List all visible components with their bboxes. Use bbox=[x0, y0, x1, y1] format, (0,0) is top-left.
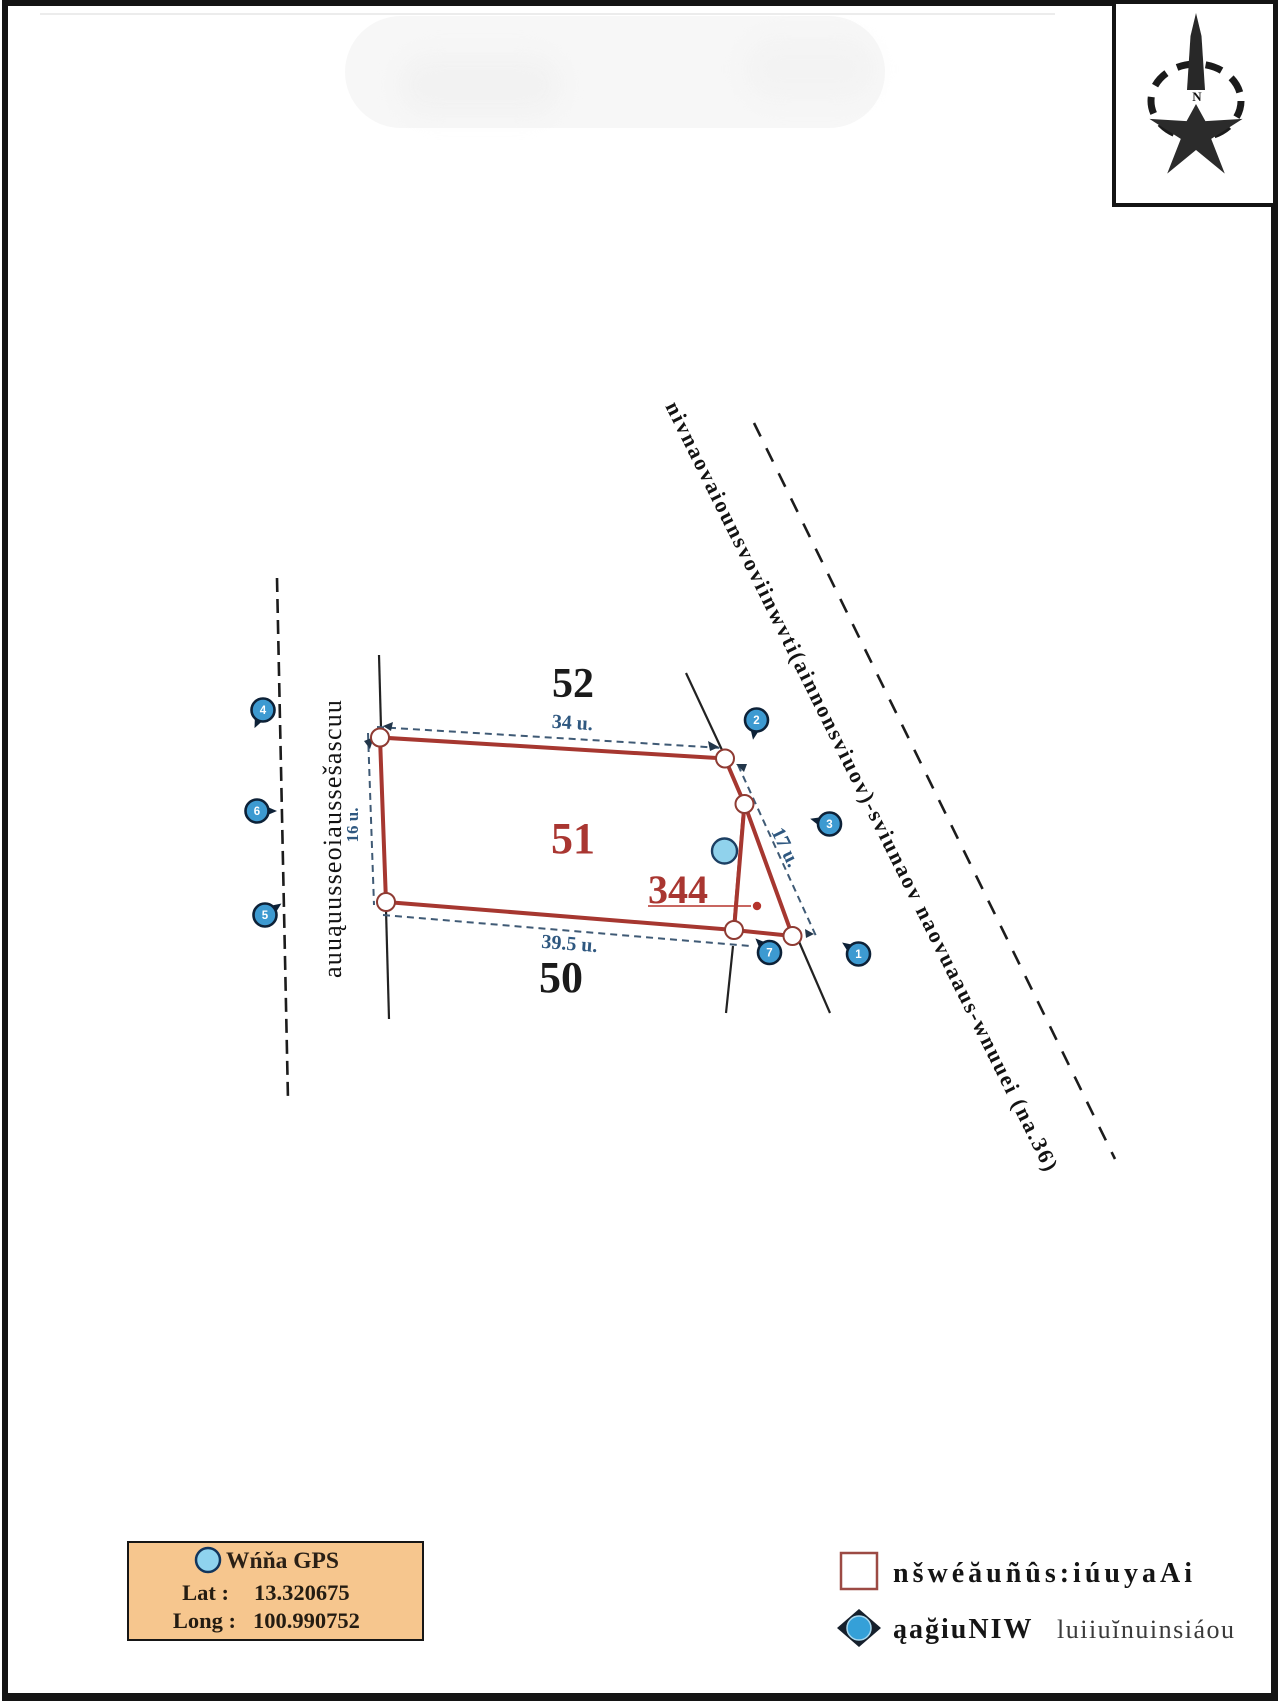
svg-text:34 u.: 34 u. bbox=[551, 711, 593, 735]
svg-text:5: 5 bbox=[262, 910, 269, 922]
svg-text:17 u.: 17 u. bbox=[766, 824, 804, 871]
svg-text:Lat :: Lat : bbox=[182, 1580, 229, 1605]
svg-text:6: 6 bbox=[254, 806, 260, 818]
svg-text:2: 2 bbox=[753, 715, 759, 727]
svg-text:51: 51 bbox=[551, 814, 595, 863]
svg-text:7: 7 bbox=[766, 948, 772, 960]
svg-text:4: 4 bbox=[260, 705, 267, 717]
svg-text:100.990752: 100.990752 bbox=[253, 1608, 360, 1633]
svg-text:1: 1 bbox=[855, 949, 862, 961]
svg-text:Wńňa GPS: Wńňa GPS bbox=[226, 1548, 339, 1574]
svg-text:luiiuĭnuinsiáou: luiiuĭnuinsiáou bbox=[1057, 1615, 1236, 1644]
svg-text:Long :: Long : bbox=[173, 1608, 236, 1633]
svg-text:nšwéăuñûs:iúuyaAi: nšwéăuñûs:iúuyaAi bbox=[893, 1558, 1196, 1589]
svg-text:39.5 u.: 39.5 u. bbox=[541, 931, 599, 957]
svg-text:344: 344 bbox=[648, 867, 708, 912]
svg-text:ąağiuNIW: ąağiuNIW bbox=[893, 1614, 1033, 1645]
svg-text:16 u.: 16 u. bbox=[343, 808, 362, 843]
svg-text:50: 50 bbox=[539, 953, 583, 1002]
svg-text:3: 3 bbox=[826, 819, 832, 831]
svg-text:13.320675: 13.320675 bbox=[254, 1580, 350, 1605]
svg-text:52: 52 bbox=[552, 661, 594, 707]
